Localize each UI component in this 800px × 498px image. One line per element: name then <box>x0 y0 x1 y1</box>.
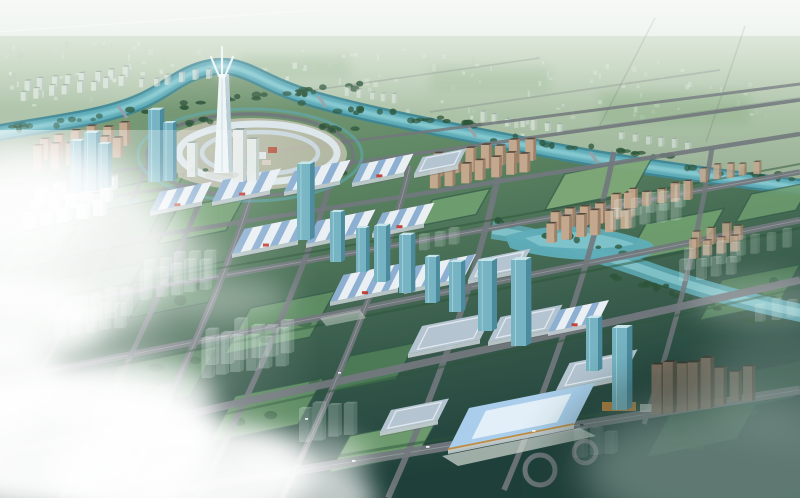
ghost-block-10-tower-front <box>435 233 443 247</box>
riverbank-2-tree <box>416 118 425 122</box>
right-tan-rows-1-tower-front <box>491 157 499 177</box>
right-tan-rows-1-tower-front <box>475 160 483 180</box>
riverbank-4-tree <box>53 122 59 129</box>
ghost-block-8-tower-front <box>782 229 789 247</box>
riverbank-2-tree <box>437 115 444 119</box>
right-tan-rows-2-tower-side <box>584 213 587 237</box>
right-tan-rows-2-tower-side <box>598 209 601 236</box>
cloud-wisp-2 <box>130 237 230 273</box>
right-tan-rows-3-tower-side <box>690 180 693 200</box>
render-root <box>0 0 800 498</box>
right-tan-rows-4-tower-side <box>733 162 735 177</box>
cloud-bl-5 <box>230 430 370 486</box>
ghost-block-8-tower-side <box>744 235 747 255</box>
north-bank-homes-5-tower-front <box>685 143 689 150</box>
ghost-block-4-tower-front <box>344 404 354 435</box>
ghost-block-8-tower-side <box>757 234 760 254</box>
glass-tower-10-side <box>598 316 602 371</box>
riverbank-4-tree <box>77 118 83 122</box>
ghost-block-7-tower-front <box>696 260 704 281</box>
right-tan-rows-4-tower-front <box>727 164 733 178</box>
glass-tower-6-side <box>436 255 440 303</box>
north-bank-homes-4-tower-front <box>531 120 535 131</box>
glass-tower-7-side <box>461 260 465 312</box>
glass-tower-6-front <box>425 257 436 303</box>
right-tan-rows-4-tower-side <box>706 167 708 182</box>
plaza-trees-4-tree <box>207 119 214 124</box>
waterway-trees-2-tree <box>654 286 660 292</box>
riverbank-3-tree <box>539 140 545 146</box>
hall-12-sign <box>572 323 578 326</box>
car-3 <box>532 430 536 432</box>
riverbank-3-tree <box>621 149 631 153</box>
ghost-block-6-tower-front <box>610 209 618 229</box>
ghost-block-8-tower-side <box>789 228 792 248</box>
right-tan-rows-2-tower-front <box>576 215 584 237</box>
ghost-block-6-tower-side <box>618 208 621 230</box>
north-bank-homes-4-tower-side <box>549 122 551 131</box>
car-5 <box>338 372 341 374</box>
riverbank-4-tree <box>96 113 103 118</box>
far-city-c-speck <box>633 114 635 118</box>
plaza-trees-3-tree <box>350 126 359 131</box>
far-city-c-speck <box>571 116 576 119</box>
plaza-trees-3-tree <box>329 129 336 133</box>
hall-9-sign <box>362 291 368 294</box>
north-bank-homes-4-tower-front <box>545 123 549 131</box>
right-tan-rows-2-tower-side <box>569 215 572 240</box>
north-bank-homes-5-tower-side <box>689 141 691 149</box>
ghost-block-6-tower-front <box>671 200 679 221</box>
far-city-c-speck <box>651 110 655 114</box>
right-tan-rows-1-tower-front <box>506 153 514 175</box>
north-bank-homes-4-tower-side <box>484 110 486 121</box>
right-tan-rows-2-tower-side <box>554 222 557 243</box>
ghost-block-7-tower-front <box>711 258 719 277</box>
car-2 <box>426 446 430 448</box>
right-tan-rows-1-tower-front <box>461 164 469 184</box>
right-tan-rows-1-tower-side <box>483 159 486 181</box>
ghost-block-6-tower-side <box>647 206 650 225</box>
right-tan-rows-1-tower-side <box>527 152 530 172</box>
hall-4-sign <box>376 174 382 177</box>
ghost-block-7-tower-side <box>704 258 707 280</box>
ghost-block-10-tower-side <box>457 227 460 245</box>
right-tan-rows-5-tower-side <box>699 230 702 247</box>
ghost-block-10-tower-side <box>427 233 430 250</box>
waterway-trees-1-tree <box>595 245 601 248</box>
glass-tower-7-front <box>449 262 461 312</box>
riverbank-5-tree <box>688 165 697 171</box>
glass-tower-9-side <box>526 257 531 346</box>
north-bank-homes-5-tower-front <box>658 138 662 147</box>
ghost-block-7-tower-side <box>719 256 722 276</box>
north-bank-homes-5-tower-side <box>662 137 664 147</box>
north-bank-homes-5-tower-side <box>637 133 639 141</box>
right-tan-rows-4-tower-front <box>700 168 706 182</box>
riverbank-2-tree <box>407 117 415 123</box>
right-tan-rows-4-tower-front <box>713 164 719 179</box>
riverbank-3-tree <box>588 144 594 150</box>
north-bank-homes-5-tower-front <box>619 132 623 139</box>
plaza-trees-4-tree <box>186 122 193 127</box>
right-tan-rows-2-tower-front <box>546 223 554 242</box>
far-city-d-speck <box>514 121 518 128</box>
riverbank-3-tree <box>636 151 646 155</box>
ghost-block-4-tower-side <box>338 403 342 437</box>
north-bank-homes-5-tower-front <box>672 139 676 148</box>
ghost-block-10-tower-front <box>419 235 427 250</box>
ghost-block-6-tower-side <box>679 198 682 220</box>
ghost-block-4-tower-side <box>354 402 358 435</box>
plaza-trees-3-tree <box>328 125 339 129</box>
ghost-block-6-tower-front <box>639 207 647 224</box>
plaza-trees-3-tree <box>319 124 326 130</box>
waterway-trees-2-tree <box>669 290 675 296</box>
waterway-trees-1-tree <box>574 236 580 243</box>
ghost-block-8-tower-front <box>767 234 774 251</box>
right-tan-rows-1-tower-side <box>514 151 517 175</box>
glass-tower-9-front <box>511 260 526 346</box>
ghost-block-7-tower-side <box>692 248 695 270</box>
ghost-block-6-tower-side <box>683 184 686 207</box>
ghost-block-8-tower-side <box>774 232 777 251</box>
ghost-block-7-tower-side <box>734 256 737 275</box>
glass-tower-4-front <box>374 226 386 282</box>
north-bank-homes-4-tower-front <box>480 112 484 122</box>
waterway-trees-2-tree <box>644 281 649 285</box>
right-tan-rows-1-tower-side <box>517 138 520 163</box>
right-tan-rows-4-tower-side <box>759 161 761 174</box>
cloud-bl-4 <box>45 357 215 433</box>
ghost-block-7-tower-side <box>687 258 690 281</box>
far-city-c-speck <box>750 113 754 115</box>
glass-tower-2-side <box>341 210 345 262</box>
glass-tower-10-front <box>586 318 598 371</box>
right-tan-rows-2-tower-side <box>559 210 562 230</box>
glass-tower-8-front <box>478 261 492 331</box>
far-city-c-speck <box>765 114 767 117</box>
city-masterplan-render <box>0 0 800 498</box>
right-tan-rows-2-tower-front <box>561 216 569 240</box>
riverbank-2-tree <box>442 119 450 123</box>
scene-canvas <box>0 0 800 498</box>
ghost-block-7-tower-front <box>726 258 734 275</box>
ghost-block-4-tower-front <box>328 405 338 437</box>
right-tan-rows-4-tower-front <box>739 164 745 176</box>
riverbank-3-tree <box>565 145 574 149</box>
plaza-trees-4-tree <box>199 117 206 122</box>
ghost-block-6-tower-side <box>664 203 667 222</box>
glass-tower-4-side <box>386 224 390 282</box>
right-tan-rows-4-tower-side <box>719 163 721 179</box>
ghost-block-6-tower-side <box>633 209 636 228</box>
glass-tower-5-front <box>399 235 411 293</box>
glass-tower-3-side <box>366 226 370 272</box>
ghost-block-6-tower-front <box>656 205 664 222</box>
hall-8-sign <box>396 225 402 228</box>
right-tan-rows-5-tower-side <box>696 238 699 259</box>
north-bank-homes-5-tower-side <box>676 138 678 148</box>
north-bank-homes-5-tower-front <box>646 136 650 144</box>
north-bank-homes-5-tower-side <box>650 135 652 144</box>
waterway-trees-2-tree <box>663 284 669 289</box>
ghost-block-6-tower-side <box>622 199 625 217</box>
ghost-block-6-tower-front <box>625 211 633 229</box>
riverbank-4-tree <box>57 118 65 123</box>
ghost-block-7-tower-front <box>679 260 687 281</box>
glass-tower-8-side <box>492 258 497 331</box>
top-haze <box>0 0 800 110</box>
riverbank-4-tree <box>68 117 76 123</box>
north-bank-homes-4-tower-side <box>535 119 537 131</box>
right-tan-rows-1-tower-side <box>503 144 506 165</box>
right-tan-rows-4-tower-front <box>753 162 759 174</box>
right-tan-rows-1-tower-front <box>519 154 527 173</box>
waterway-trees-1-tree <box>615 245 622 249</box>
waterway-trees-2-tree <box>613 276 622 282</box>
glass-tower-3-front <box>356 228 366 272</box>
riverbank-4-tree <box>90 118 95 122</box>
cloud-wisp-1 <box>170 280 290 320</box>
ghost-block-8-tower-front <box>737 237 744 256</box>
right-tan-rows-1-tower-side <box>469 162 472 183</box>
ghost-block-10-tower-front <box>449 228 457 244</box>
riverbank-5-tree <box>788 177 795 181</box>
ghost-block-8-tower-front <box>750 235 757 254</box>
right-tan-rows-4-tower-side <box>745 163 747 176</box>
glass-tower-5-side <box>411 233 415 293</box>
north-bank-homes-5-tower-front <box>633 134 637 141</box>
right-tan-rows-5-tower-side <box>714 227 717 245</box>
right-tan-rows-2-tower-side <box>573 207 576 227</box>
north-bank-homes-5-tower-side <box>623 131 625 139</box>
right-tan-rows-2-tower-front <box>590 210 598 235</box>
right-tan-rows-1-tower-side <box>533 138 536 161</box>
glass-tower-2-front <box>330 212 341 262</box>
ghost-block-6-tower-side <box>654 192 657 213</box>
far-city-d-speck <box>470 116 473 120</box>
right-tan-rows-1-tower-side <box>499 155 502 177</box>
ghost-block-10-tower-side <box>443 231 446 247</box>
